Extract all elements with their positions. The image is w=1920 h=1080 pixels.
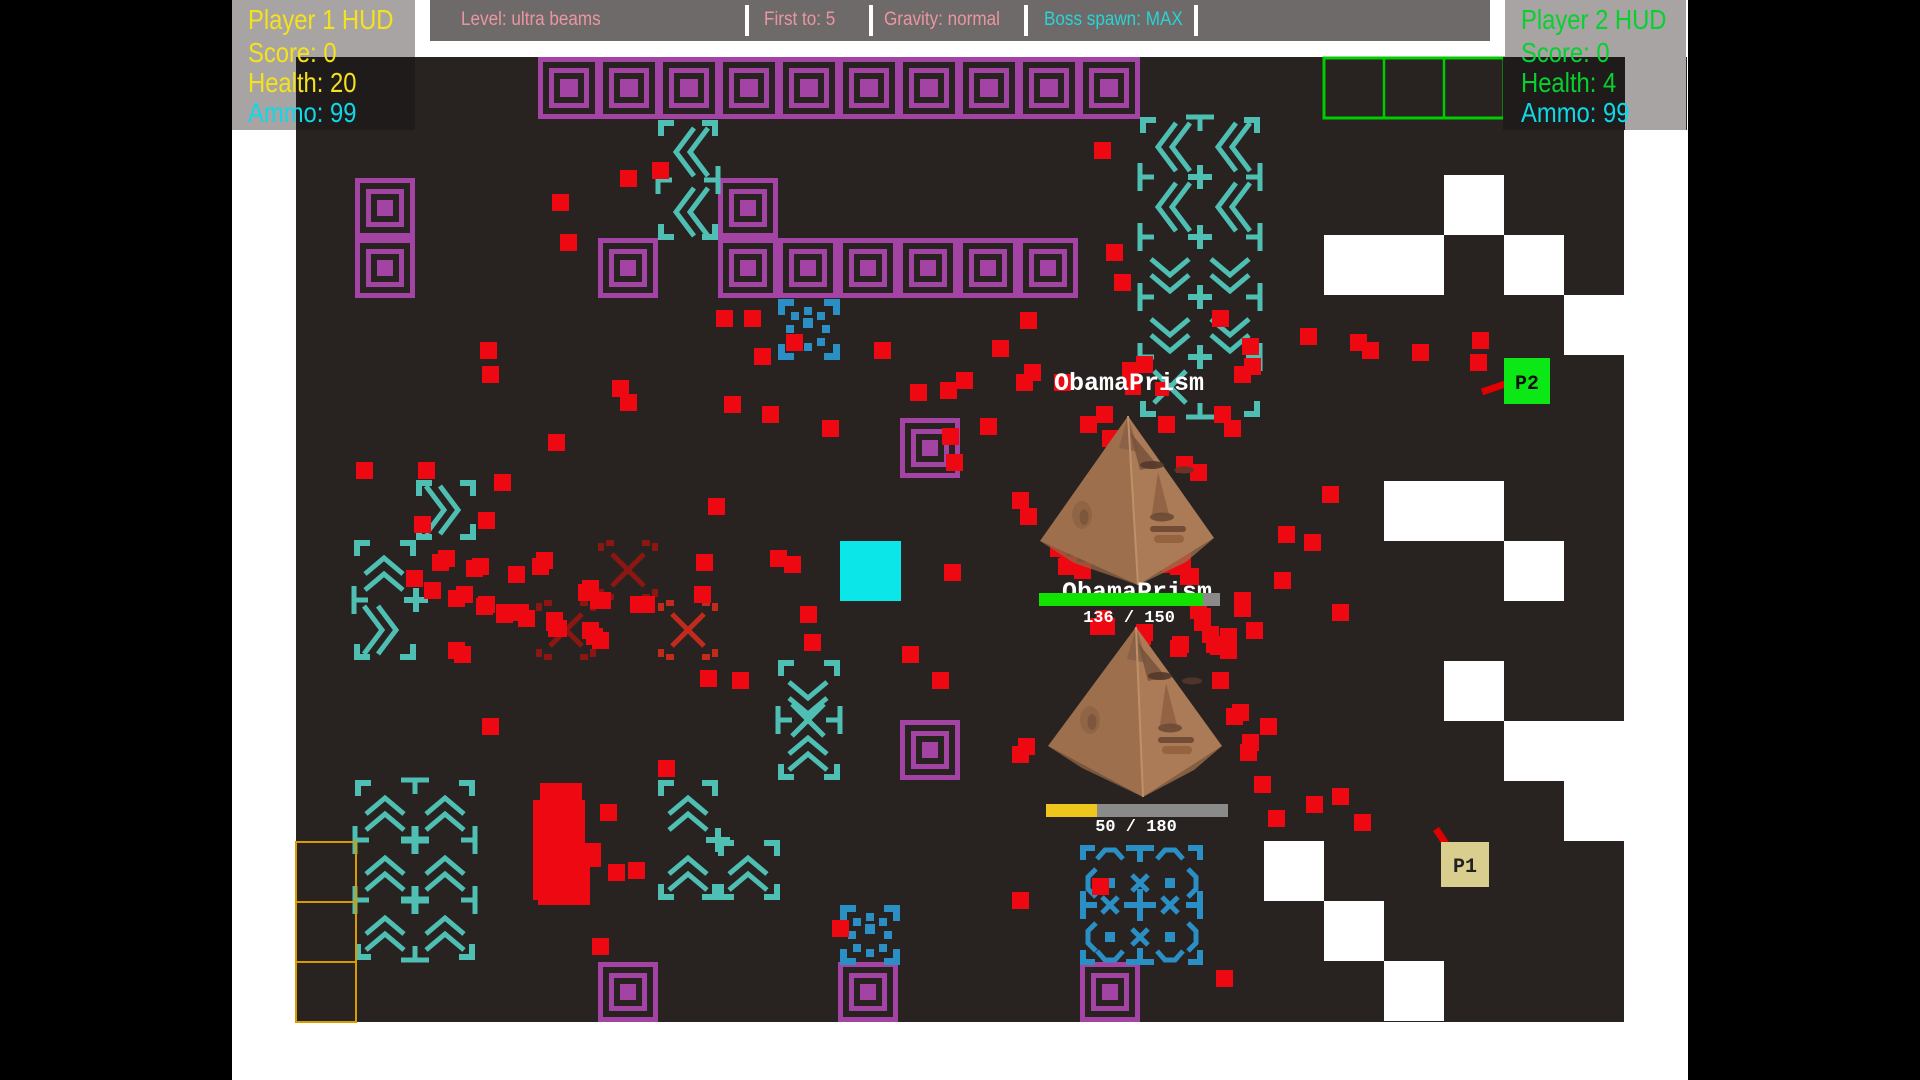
- svg-text:50 / 180: 50 / 180: [1095, 818, 1177, 837]
- svg-text:P1: P1: [1453, 856, 1477, 879]
- svg-text:P2: P2: [1515, 373, 1539, 396]
- svg-text:136 / 150: 136 / 150: [1083, 609, 1175, 628]
- svg-text:ObamaPrism: ObamaPrism: [1054, 369, 1204, 398]
